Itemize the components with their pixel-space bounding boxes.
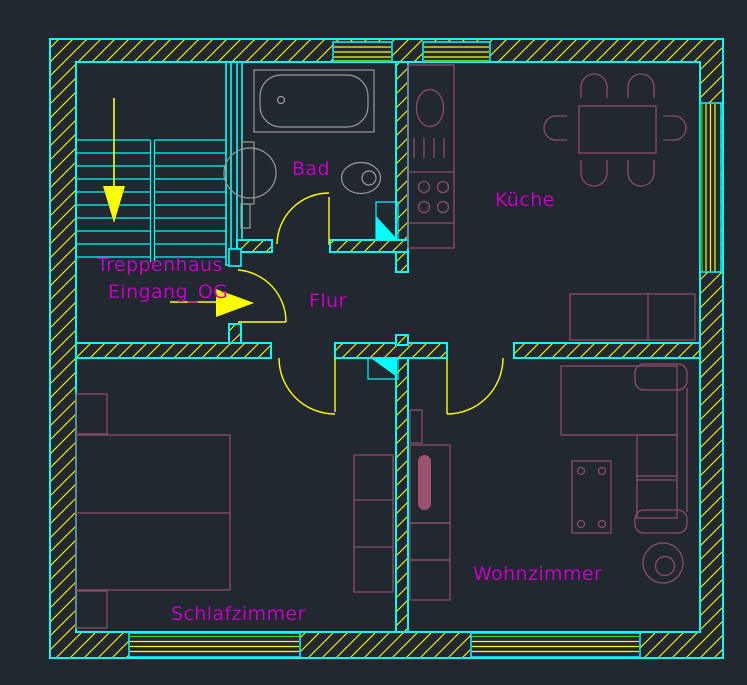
drawing-canvas[interactable]: Treppenhaus Eingang_OG Bad Küche Flur Sc… xyxy=(0,0,747,685)
label-stairwell: Treppenhaus xyxy=(96,254,223,276)
label-bedroom: Schlafzimmer xyxy=(171,603,306,625)
wall-entry-stub-upper xyxy=(229,249,241,266)
label-living-room: Wohnzimmer xyxy=(473,563,602,585)
kitchen-window-right xyxy=(700,103,721,272)
wall-mid-stub xyxy=(396,335,408,345)
wall-kitchen-living xyxy=(514,343,700,358)
kitchen-window-top xyxy=(423,42,490,62)
label-bathroom: Bad xyxy=(292,158,330,180)
wall-bedroom-living xyxy=(396,358,408,632)
wall-mid-center xyxy=(335,343,447,358)
living-room-window-bottom xyxy=(471,633,640,657)
bedroom-window-bottom xyxy=(129,633,300,657)
wall-stairwell-right xyxy=(226,62,231,265)
label-kitchen: Küche xyxy=(495,189,555,211)
wall-bath-bottom-left xyxy=(237,240,272,252)
wall-bath-bottom-right xyxy=(330,240,408,252)
tv xyxy=(418,455,431,510)
wall-bedroom-top xyxy=(76,343,271,358)
wall-entry-stub-lower xyxy=(229,324,241,343)
bath-window-top xyxy=(333,42,392,62)
label-hallway: Flur xyxy=(309,290,347,312)
label-entrance: Eingang_OG xyxy=(108,281,228,303)
